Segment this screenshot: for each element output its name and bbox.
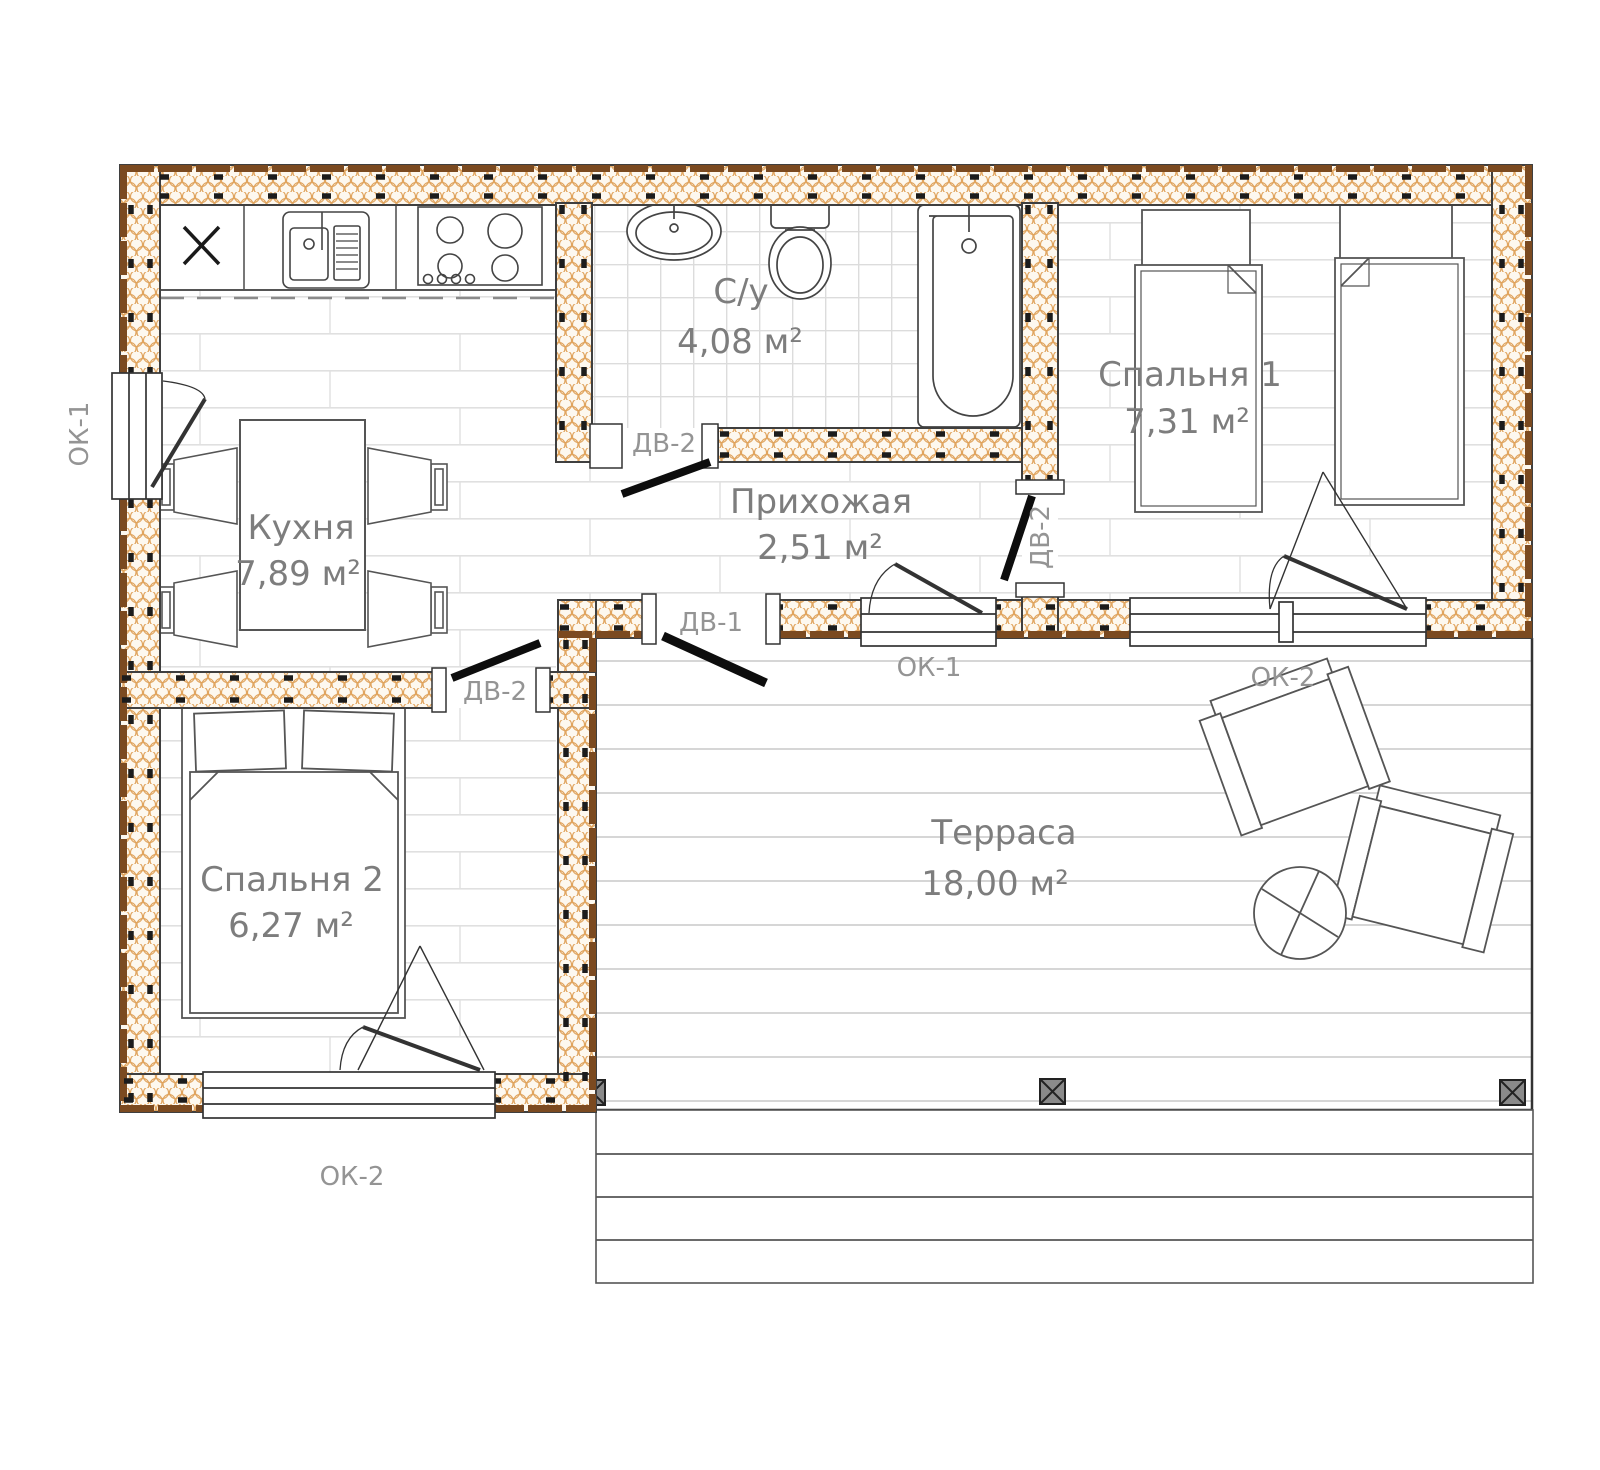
terrace-name: Терраса <box>930 813 1076 853</box>
kitchen-counter <box>160 203 556 298</box>
bedroom2-area: 6,27 м² <box>228 906 354 946</box>
post-icon <box>1500 1080 1525 1105</box>
wall-kitchen-bedroom2-a <box>120 672 438 708</box>
kitchen-name: Кухня <box>247 508 354 548</box>
kitchen-area: 7,89 м² <box>235 554 361 594</box>
wash-basin <box>627 202 721 260</box>
bathroom-area: 4,08 м² <box>677 322 803 362</box>
label-window-bedroom2: ОК-2 <box>320 1162 385 1192</box>
bathroom-name: С/у <box>713 272 768 312</box>
floor-plan: Кухня 7,89 м² С/у 4,08 м² Прихожая 2,51 … <box>0 0 1600 1470</box>
hallway-area: 2,51 м² <box>757 528 883 568</box>
terrace-steps <box>596 1110 1533 1283</box>
bedroom2-name: Спальня 2 <box>200 860 384 900</box>
label-window-hall: ОК-1 <box>897 653 962 683</box>
stove <box>418 207 542 285</box>
terrace-area: 18,00 м² <box>921 864 1068 904</box>
wall-bath-south <box>718 428 1022 462</box>
bedroom1-area: 7,31 м² <box>1124 402 1250 442</box>
label-door-bath: ДВ-2 <box>632 429 696 459</box>
round-table <box>1254 867 1346 959</box>
label-window-west: ОК-1 <box>65 402 95 467</box>
bedroom1-name: Спальня 1 <box>1098 355 1282 395</box>
single-bed <box>1335 202 1464 505</box>
hallway-name: Прихожая <box>730 482 912 522</box>
wall-bath-bedroom1 <box>1022 203 1058 490</box>
pillow <box>302 710 394 771</box>
label-door-entry: ДВ-1 <box>679 608 743 638</box>
label-window-bedroom1: ОК-2 <box>1251 663 1316 693</box>
label-door-bedroom2: ДВ-2 <box>463 677 527 707</box>
post-icon <box>1040 1079 1065 1104</box>
kitchen-sink <box>283 212 369 288</box>
bathtub <box>918 205 1020 427</box>
toilet <box>769 201 831 299</box>
pillow <box>194 710 286 771</box>
floor-plan-drawing: Кухня 7,89 м² С/у 4,08 м² Прихожая 2,51 … <box>0 0 1600 1470</box>
label-door-bedroom1: ДВ-2 <box>1026 505 1056 569</box>
hall-connector-floor <box>556 462 592 600</box>
